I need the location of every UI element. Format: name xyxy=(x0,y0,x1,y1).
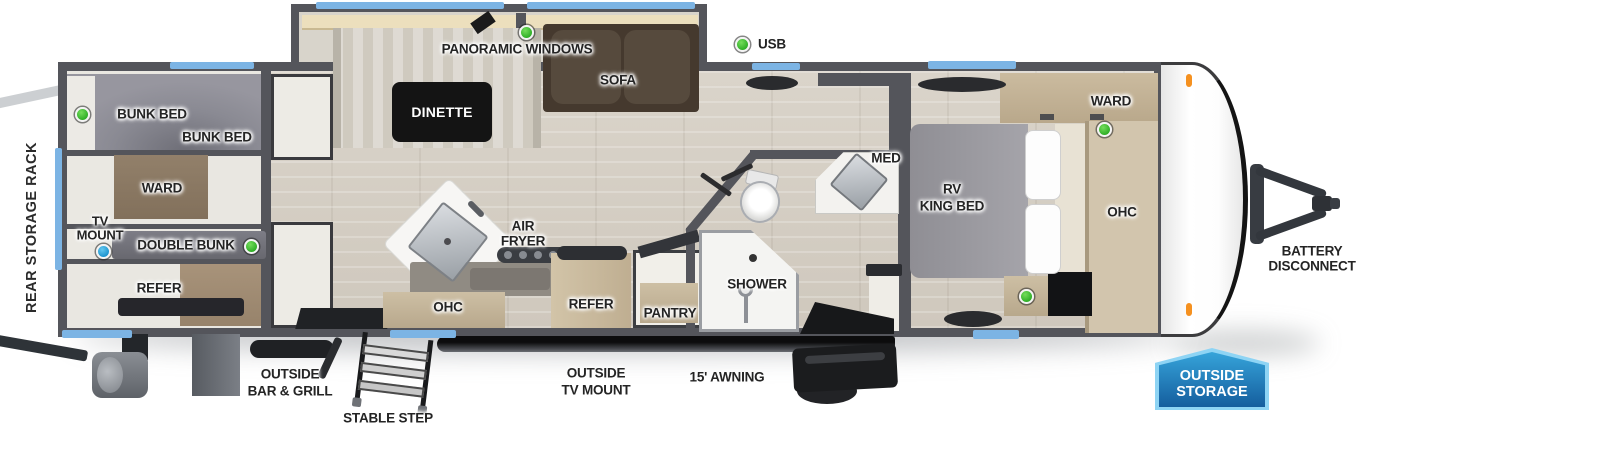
ward-handle-2 xyxy=(1090,114,1104,120)
air-fryer-label-1: AIR xyxy=(512,219,535,234)
outside-storage-label-2: STORAGE xyxy=(1176,384,1247,400)
tv-mount-label-2: MOUNT xyxy=(77,228,124,243)
shower-label: SHOWER xyxy=(727,277,787,292)
step-tread-3 xyxy=(358,380,425,398)
entry-step-assembly xyxy=(792,343,898,392)
hitch-arm-lower xyxy=(1255,208,1328,242)
step-tread-1 xyxy=(362,344,429,362)
window-slideout-left xyxy=(316,2,504,9)
hitch-ball-nub xyxy=(1330,198,1340,209)
king-bed-label-2: KING BED xyxy=(920,199,984,214)
bedroom-ohc-label: OHC xyxy=(1107,205,1136,220)
shower-drain xyxy=(749,254,757,262)
entry-landing-rear xyxy=(295,308,393,329)
step-foot-left xyxy=(352,397,362,407)
rear-rack-bar-top xyxy=(0,85,64,110)
rear-tank-face xyxy=(97,357,123,393)
window-bottom-bedroom xyxy=(973,330,1019,339)
bunkroom-kitchenette xyxy=(180,264,262,326)
window-bottom-rear xyxy=(62,330,132,338)
hitch-arm-upper xyxy=(1255,166,1328,200)
outside-bar-grill-label-1: OUTSIDE xyxy=(261,367,320,382)
bath-cabinet-counter xyxy=(866,264,902,276)
stable-step xyxy=(348,331,441,417)
bedroom-ohc-lens xyxy=(918,77,1006,92)
ward-handle-1 xyxy=(1040,114,1054,120)
bunkroom-right-wall xyxy=(261,70,271,328)
air-fryer-label-2: FRYER xyxy=(501,234,545,249)
bath-nook-wall-v xyxy=(889,86,901,152)
outside-storage-label-1: OUTSIDE xyxy=(1180,368,1244,384)
double-bunk-marker xyxy=(244,239,259,254)
tv-mount-marker xyxy=(96,244,111,259)
bunkroom-ward-label: WARD xyxy=(142,181,182,196)
bedroom-nightstand-marker xyxy=(1019,289,1034,304)
bunkroom-refer-label: REFER xyxy=(137,281,182,296)
window-rear-side xyxy=(55,148,62,270)
burner xyxy=(504,251,512,259)
window-bottom-door xyxy=(390,330,456,338)
burner xyxy=(534,251,542,259)
bath-nook-wall-h xyxy=(818,73,911,86)
window-bedroom-top xyxy=(928,61,1016,69)
bed-pillow-bottom xyxy=(1025,204,1061,274)
bedroom-ward-cabinet xyxy=(1000,73,1158,123)
marker-light-top xyxy=(1186,74,1192,87)
king-bed-label-1: RV xyxy=(943,182,961,197)
bed-foot-lens xyxy=(944,311,1002,327)
tv-mount-label-1: TV xyxy=(92,214,108,229)
marker-light-bottom xyxy=(1186,303,1192,316)
outside-bar-grill-label-2: BAR & GRILL xyxy=(248,384,333,399)
window-bunkroom-top xyxy=(170,62,254,69)
stable-step-label: STABLE STEP xyxy=(343,411,433,426)
rear-storage-rack-label: REAR STORAGE RACK xyxy=(24,118,40,313)
usb-label: USB xyxy=(758,37,786,52)
step-tread-2 xyxy=(360,362,427,380)
bedroom-ward-label: WARD xyxy=(1091,94,1131,109)
outside-tv-mount-label-1: OUTSIDE xyxy=(567,366,626,381)
floorplan-canvas: REAR STORAGE RACK BATTERY DISCONNECT DIN… xyxy=(0,0,1600,469)
window-slideout-right xyxy=(527,2,695,9)
rear-bracket-box xyxy=(192,334,240,396)
sink-drain xyxy=(444,238,451,245)
oven-front xyxy=(470,268,550,290)
outside-griddle xyxy=(250,340,334,358)
double-bunk-label: DOUBLE BUNK xyxy=(137,238,235,253)
bunk-marker xyxy=(75,107,90,122)
hall-ohc-lens xyxy=(746,76,798,90)
shower-faucet-stem xyxy=(744,295,748,323)
kitchen-refer xyxy=(551,253,631,328)
bed-pillow-top xyxy=(1025,130,1061,200)
window-hall-top xyxy=(752,63,800,70)
bunk-bed-upper-label: BUNK BED xyxy=(117,107,187,122)
front-cap xyxy=(1161,62,1248,337)
dinette-bench-side-left xyxy=(333,28,341,148)
panoramic-windows-marker xyxy=(519,25,534,40)
battery-disconnect-label-2: DISCONNECT xyxy=(1268,259,1355,274)
usb-marker xyxy=(735,37,750,52)
sofa-label: SOFA xyxy=(600,73,636,88)
kitchen-ohc-label: OHC xyxy=(433,300,462,315)
galley-cabinet-upper xyxy=(271,74,333,160)
med-cabinet-label: MED xyxy=(871,151,900,166)
burner xyxy=(519,251,527,259)
bedroom-ward-marker xyxy=(1097,122,1112,137)
bunkroom-counter xyxy=(118,298,244,316)
sofa-cushion-right xyxy=(624,30,690,104)
kitchen-refer-top xyxy=(557,246,627,260)
panoramic-windows-label: PANORAMIC WINDOWS xyxy=(442,42,593,57)
bunk-bed-lower-label: BUNK BED xyxy=(182,130,252,145)
dinette-label: DINETTE xyxy=(411,104,472,120)
bedroom-tv xyxy=(1048,272,1092,316)
bedroom-ohc-column xyxy=(1085,121,1158,333)
awning-label: 15' AWNING xyxy=(690,370,765,385)
battery-disconnect-label-1: BATTERY xyxy=(1282,244,1343,259)
pantry-label: PANTRY xyxy=(644,306,697,321)
outside-tv-mount-label-2: TV MOUNT xyxy=(562,383,631,398)
kitchen-refer-label: REFER xyxy=(569,297,614,312)
hitch-coupler xyxy=(1312,196,1332,211)
